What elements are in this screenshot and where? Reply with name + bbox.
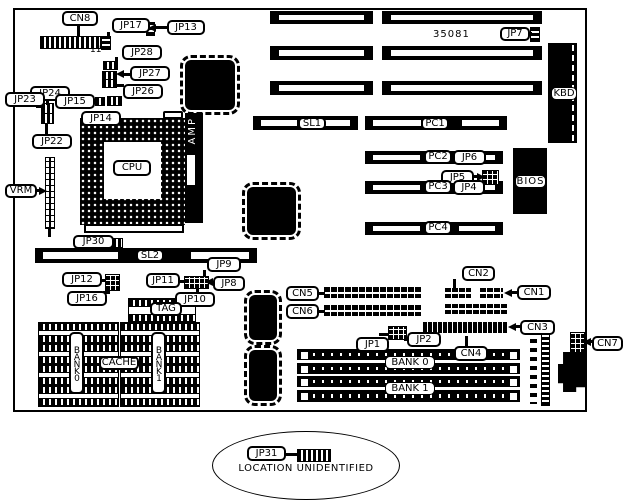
cn8-pin-number: 11 bbox=[90, 46, 101, 55]
jp14-label: JP14 bbox=[81, 111, 121, 126]
jp2-label: JP2 bbox=[407, 332, 441, 347]
isa-slot bbox=[270, 46, 373, 60]
jp27-label: JP27 bbox=[130, 66, 170, 81]
jp8-label: JP8 bbox=[213, 276, 245, 291]
simm-clip bbox=[509, 365, 518, 374]
isa-slot bbox=[270, 81, 373, 95]
cn2-label: CN2 bbox=[462, 266, 495, 281]
cpu-label: CPU bbox=[113, 160, 151, 176]
pointer-line bbox=[203, 270, 206, 277]
part-number: 35081 bbox=[433, 30, 470, 40]
jp31-jumper bbox=[297, 449, 331, 462]
pointer-line bbox=[284, 453, 298, 456]
qfp-chip bbox=[247, 187, 296, 235]
cn1-header bbox=[480, 288, 503, 298]
pointer-line bbox=[453, 279, 456, 289]
cn6-header bbox=[324, 305, 421, 316]
jp11-label: JP11 bbox=[146, 273, 180, 288]
cn6-label: CN6 bbox=[286, 304, 319, 319]
isa-slot bbox=[382, 81, 542, 95]
jp31-label: JP31 bbox=[247, 446, 286, 461]
pc4-label: PC4 bbox=[424, 221, 452, 235]
pc2-label: PC2 bbox=[424, 150, 452, 164]
amp-component: AMP bbox=[185, 113, 203, 223]
pc1-label: PC1 bbox=[421, 117, 449, 130]
jp17-jumper bbox=[101, 36, 111, 50]
pointer-line bbox=[379, 333, 389, 336]
cache-bank1-label: BANK1 bbox=[151, 332, 166, 394]
simm-clip bbox=[300, 351, 309, 360]
cn3-label: CN3 bbox=[520, 320, 555, 335]
kbd-label: KBD bbox=[551, 87, 577, 100]
jp12-jp16-jumper-block bbox=[105, 274, 120, 291]
jp15-label: JP15 bbox=[55, 94, 95, 109]
pointer-line bbox=[107, 32, 110, 38]
simm-bank1-label: BANK 1 bbox=[385, 382, 435, 395]
simm-clip bbox=[300, 378, 309, 387]
pointer-line bbox=[115, 57, 118, 63]
cn5-header bbox=[324, 287, 421, 298]
pointer-line bbox=[77, 25, 80, 37]
pointer-arrow bbox=[205, 278, 213, 286]
motherboard-diagram: CPU AMP bbox=[0, 0, 623, 503]
jp4-label: JP4 bbox=[453, 180, 485, 195]
cache-bank0-label: BANK0 bbox=[69, 332, 84, 394]
amp-window bbox=[187, 155, 195, 185]
jp1-label: JP1 bbox=[356, 337, 389, 352]
cn1-label: CN1 bbox=[517, 285, 551, 300]
pin-header bbox=[445, 304, 507, 314]
jp15-jumper bbox=[107, 96, 122, 106]
jp12-label: JP12 bbox=[62, 272, 102, 287]
vrm-tail bbox=[48, 229, 51, 237]
jp30-label: JP30 bbox=[73, 235, 114, 249]
amp-label: AMP bbox=[187, 117, 198, 145]
pin-column bbox=[541, 332, 550, 406]
qfp-chip bbox=[249, 350, 277, 401]
simm-clip bbox=[300, 365, 309, 374]
jp17-label: JP17 bbox=[112, 18, 150, 33]
isa-slot bbox=[382, 46, 542, 60]
sl2-label: SL2 bbox=[136, 249, 164, 262]
cn8-label: CN8 bbox=[62, 11, 98, 26]
jp7-label: JP7 bbox=[500, 27, 530, 41]
pc3-label: PC3 bbox=[424, 180, 452, 194]
bios-label: BIOS bbox=[515, 175, 546, 188]
vertical-connector bbox=[528, 332, 539, 404]
cn5-label: CN5 bbox=[286, 286, 319, 301]
isa-slot bbox=[382, 11, 542, 24]
isa-slot bbox=[270, 11, 373, 24]
simm-clip bbox=[509, 392, 518, 401]
cpu-socket-base bbox=[84, 224, 184, 233]
qfp-chip bbox=[185, 60, 235, 110]
jp9-label: JP9 bbox=[207, 257, 241, 272]
note-text: LOCATION UNIDENTIFIED bbox=[212, 464, 400, 474]
jp26-label: JP26 bbox=[123, 84, 163, 99]
qfp-chip bbox=[249, 295, 277, 340]
vrm-label: VRM bbox=[5, 184, 37, 198]
cache-label: CACHE bbox=[99, 356, 139, 370]
cn4-label: CN4 bbox=[454, 346, 488, 361]
jp28-label: JP28 bbox=[122, 45, 162, 60]
jp23-label: JP23 bbox=[5, 92, 45, 107]
jp16-label: JP16 bbox=[67, 291, 107, 306]
cpu-socket-tab bbox=[163, 111, 183, 119]
sl1-label: SL1 bbox=[298, 117, 326, 130]
jp6-label: JP6 bbox=[453, 150, 486, 165]
cn2-header bbox=[445, 288, 471, 298]
simm-clip bbox=[509, 378, 518, 387]
pointer-arrow bbox=[39, 187, 47, 195]
jp22-label: JP22 bbox=[32, 134, 72, 149]
cn7-label: CN7 bbox=[592, 336, 623, 351]
jp13-label: JP13 bbox=[167, 20, 205, 35]
simm-clip bbox=[509, 351, 518, 360]
tag-label: TAG bbox=[150, 302, 182, 316]
simm-bank0-label: BANK 0 bbox=[385, 356, 435, 369]
simm-clip bbox=[300, 392, 309, 401]
